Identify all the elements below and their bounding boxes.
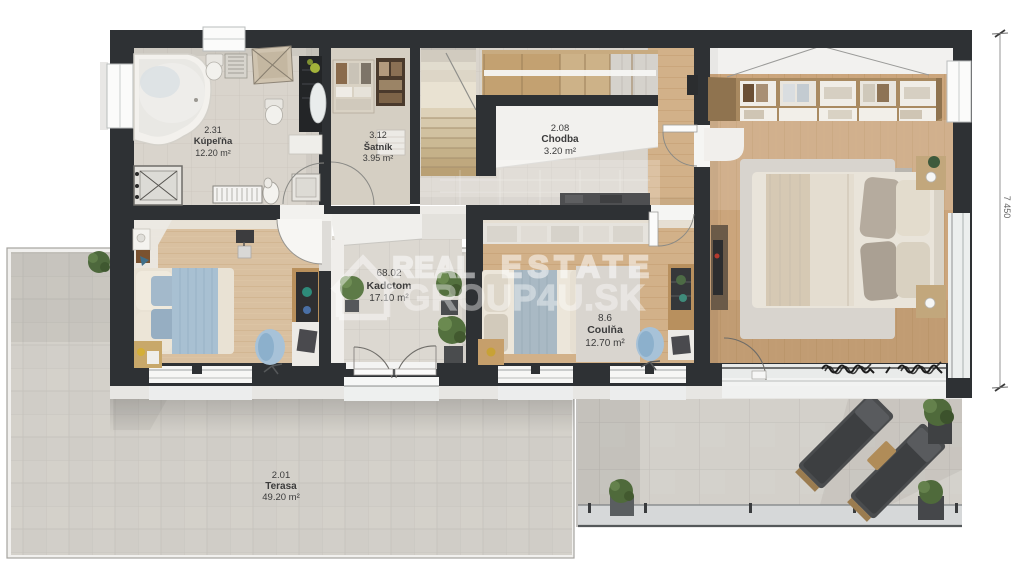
- svg-text:Kúpeľňa: Kúpeľňa: [194, 136, 233, 147]
- svg-text:Terasa: Terasa: [265, 481, 297, 492]
- svg-text:Coulňa: Coulňa: [587, 324, 623, 336]
- svg-text:3.20 m²: 3.20 m²: [544, 146, 576, 157]
- svg-text:3.12: 3.12: [369, 130, 387, 140]
- svg-text:3.95 m²: 3.95 m²: [363, 153, 394, 163]
- svg-text:2.31: 2.31: [204, 125, 222, 135]
- svg-text:2.01: 2.01: [272, 470, 291, 481]
- svg-text:Chodba: Chodba: [541, 134, 579, 145]
- svg-text:GROUP4U.SK: GROUP4U.SK: [402, 277, 645, 318]
- svg-text:49.20 m²: 49.20 m²: [262, 492, 300, 503]
- svg-text:12.20 m²: 12.20 m²: [195, 148, 231, 158]
- svg-text:Šatník: Šatník: [364, 141, 393, 153]
- svg-text:7 450: 7 450: [1002, 196, 1011, 219]
- svg-text:12.70 m²: 12.70 m²: [585, 338, 625, 349]
- svg-text:2.08: 2.08: [551, 123, 570, 134]
